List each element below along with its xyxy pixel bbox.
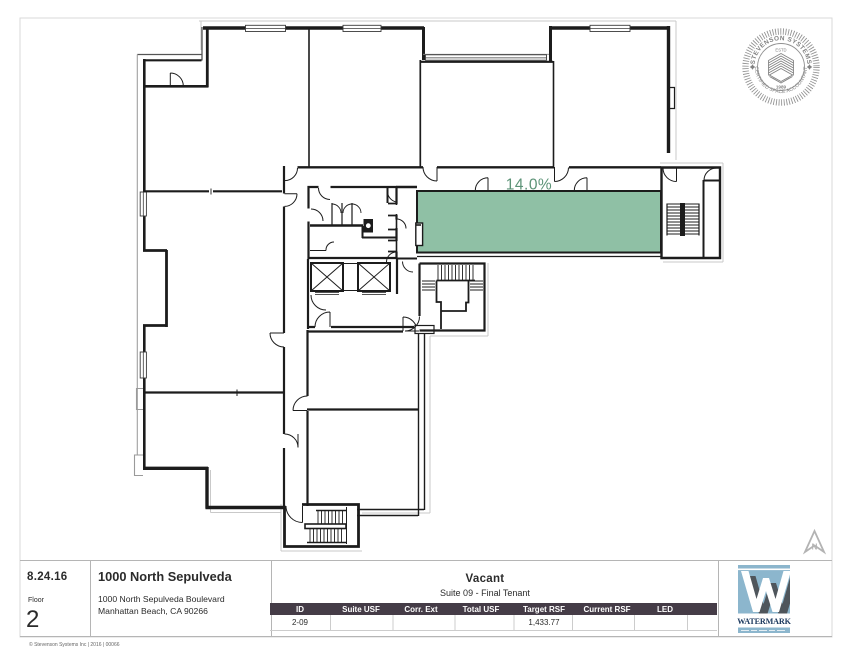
svg-text:2-09: 2-09 — [292, 618, 309, 627]
svg-text:1989: 1989 — [776, 85, 787, 90]
svg-text:LED: LED — [657, 605, 673, 614]
svg-text:WATERMARK: WATERMARK — [737, 617, 791, 626]
svg-text:ID: ID — [296, 605, 304, 614]
svg-text:1000 North Sepulveda Boulevard: 1000 North Sepulveda Boulevard — [98, 594, 225, 604]
svg-text:Current RSF: Current RSF — [583, 605, 630, 614]
svg-text:N: N — [812, 543, 818, 552]
svg-text:Suite USF: Suite USF — [342, 605, 380, 614]
svg-text:1000 North Sepulveda: 1000 North Sepulveda — [98, 569, 233, 584]
svg-text:8.24.16: 8.24.16 — [27, 571, 67, 583]
svg-text:Manhattan Beach, CA 90266: Manhattan Beach, CA 90266 — [98, 606, 208, 616]
svg-text:1,433.77: 1,433.77 — [528, 618, 560, 627]
svg-text:© Stevenson Systems Inc | 2016: © Stevenson Systems Inc | 2016 | 00066 — [29, 641, 120, 648]
svg-text:ESTD: ESTD — [775, 48, 786, 53]
svg-text:Floor: Floor — [28, 597, 45, 604]
svg-text:Target RSF: Target RSF — [523, 605, 565, 614]
svg-text:CERTIFIED SPACE ACCOUNTANT: CERTIFIED SPACE ACCOUNTANT — [753, 66, 809, 95]
svg-text:Suite 09 - Final Tenant: Suite 09 - Final Tenant — [440, 588, 530, 598]
svg-text:Total USF: Total USF — [463, 605, 500, 614]
svg-text:14.0%: 14.0% — [506, 177, 552, 194]
svg-text:Vacant: Vacant — [466, 573, 505, 585]
svg-text:2: 2 — [26, 606, 39, 633]
svg-text:Corr. Ext: Corr. Ext — [404, 605, 438, 614]
